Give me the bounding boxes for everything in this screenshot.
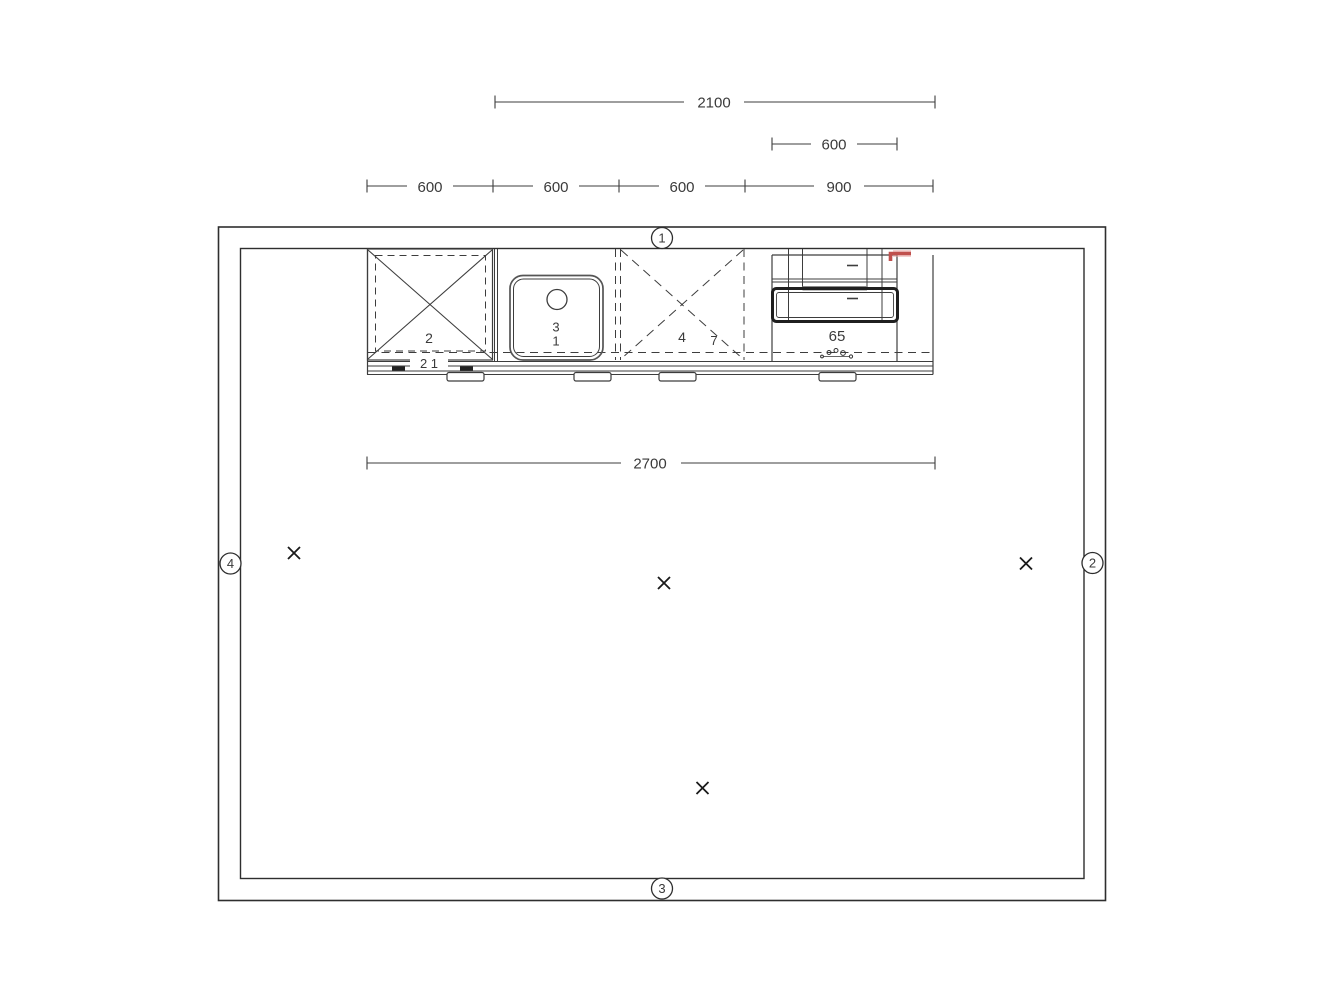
wall-marker-4[interactable]: 4 [220, 553, 241, 574]
wall-marker-1-label: 1 [658, 231, 665, 246]
dashed-cabinet-label: 4 [678, 329, 686, 345]
burner-symbol-icon [821, 349, 853, 359]
floor-plan-canvas: 2100 600 600 600 600 900 2700 [0, 0, 1324, 993]
oven-front-heavy-outline [773, 289, 898, 322]
position-x-icon[interactable] [288, 547, 300, 559]
room-walls [219, 227, 1106, 901]
sink-label-top: 3 [552, 320, 559, 335]
sink-cabinet[interactable]: 3 1 [510, 276, 603, 361]
dim-label-module-3: 600 [669, 179, 694, 196]
position-x-icon[interactable] [658, 577, 670, 589]
wall-marker-3-label: 3 [658, 881, 665, 896]
range-appliance-label: 65 [829, 328, 846, 345]
dimension-appliance-width: 600 [772, 136, 897, 154]
position-x-icon[interactable] [697, 782, 709, 794]
wall-marker-3[interactable]: 3 [652, 878, 673, 899]
wall-marker-1[interactable]: 1 [652, 228, 673, 249]
dim-label-2100: 2100 [697, 95, 730, 112]
hinge-mark [392, 367, 405, 371]
hinge-mark [460, 367, 473, 371]
dashed-cabinet-sublabel: 7 [710, 333, 717, 348]
position-x-icon[interactable] [1020, 558, 1032, 570]
wall-marker-4-label: 4 [227, 556, 234, 571]
door-handle [659, 373, 696, 382]
door-handle [574, 373, 611, 382]
red-corner-mark [891, 254, 912, 262]
sink-drain-icon [547, 290, 567, 310]
corner-cabinet-label: 2 [425, 330, 433, 346]
oven-front-inner-line [777, 293, 894, 318]
wall-markers: 1 2 3 4 [220, 228, 1103, 900]
sink-label-bottom: 1 [552, 334, 559, 349]
corner-cabinet-sublabel: 2 1 [420, 356, 438, 371]
range-appliance[interactable]: 65 [772, 249, 911, 362]
counter-front-edge [367, 249, 933, 382]
dimension-overall-top: 2100 [495, 94, 935, 112]
wall-outer-line [219, 227, 1106, 901]
dimension-modules-row: 600 600 600 900 [367, 179, 933, 197]
door-handle [447, 373, 484, 382]
dim-label-module-2: 600 [543, 179, 568, 196]
dim-label-2700: 2700 [633, 456, 666, 473]
wall-marker-2-label: 2 [1089, 556, 1096, 571]
door-handle [819, 373, 856, 382]
wall-marker-2[interactable]: 2 [1082, 553, 1103, 574]
dim-label-600-appliance: 600 [821, 137, 846, 154]
dim-label-module-4: 900 [826, 179, 851, 196]
dashed-cabinet[interactable]: 4 7 [621, 249, 744, 360]
dim-label-module-1: 600 [417, 179, 442, 196]
position-cross-marks [288, 547, 1032, 794]
dimension-run-width: 2700 [367, 456, 935, 473]
